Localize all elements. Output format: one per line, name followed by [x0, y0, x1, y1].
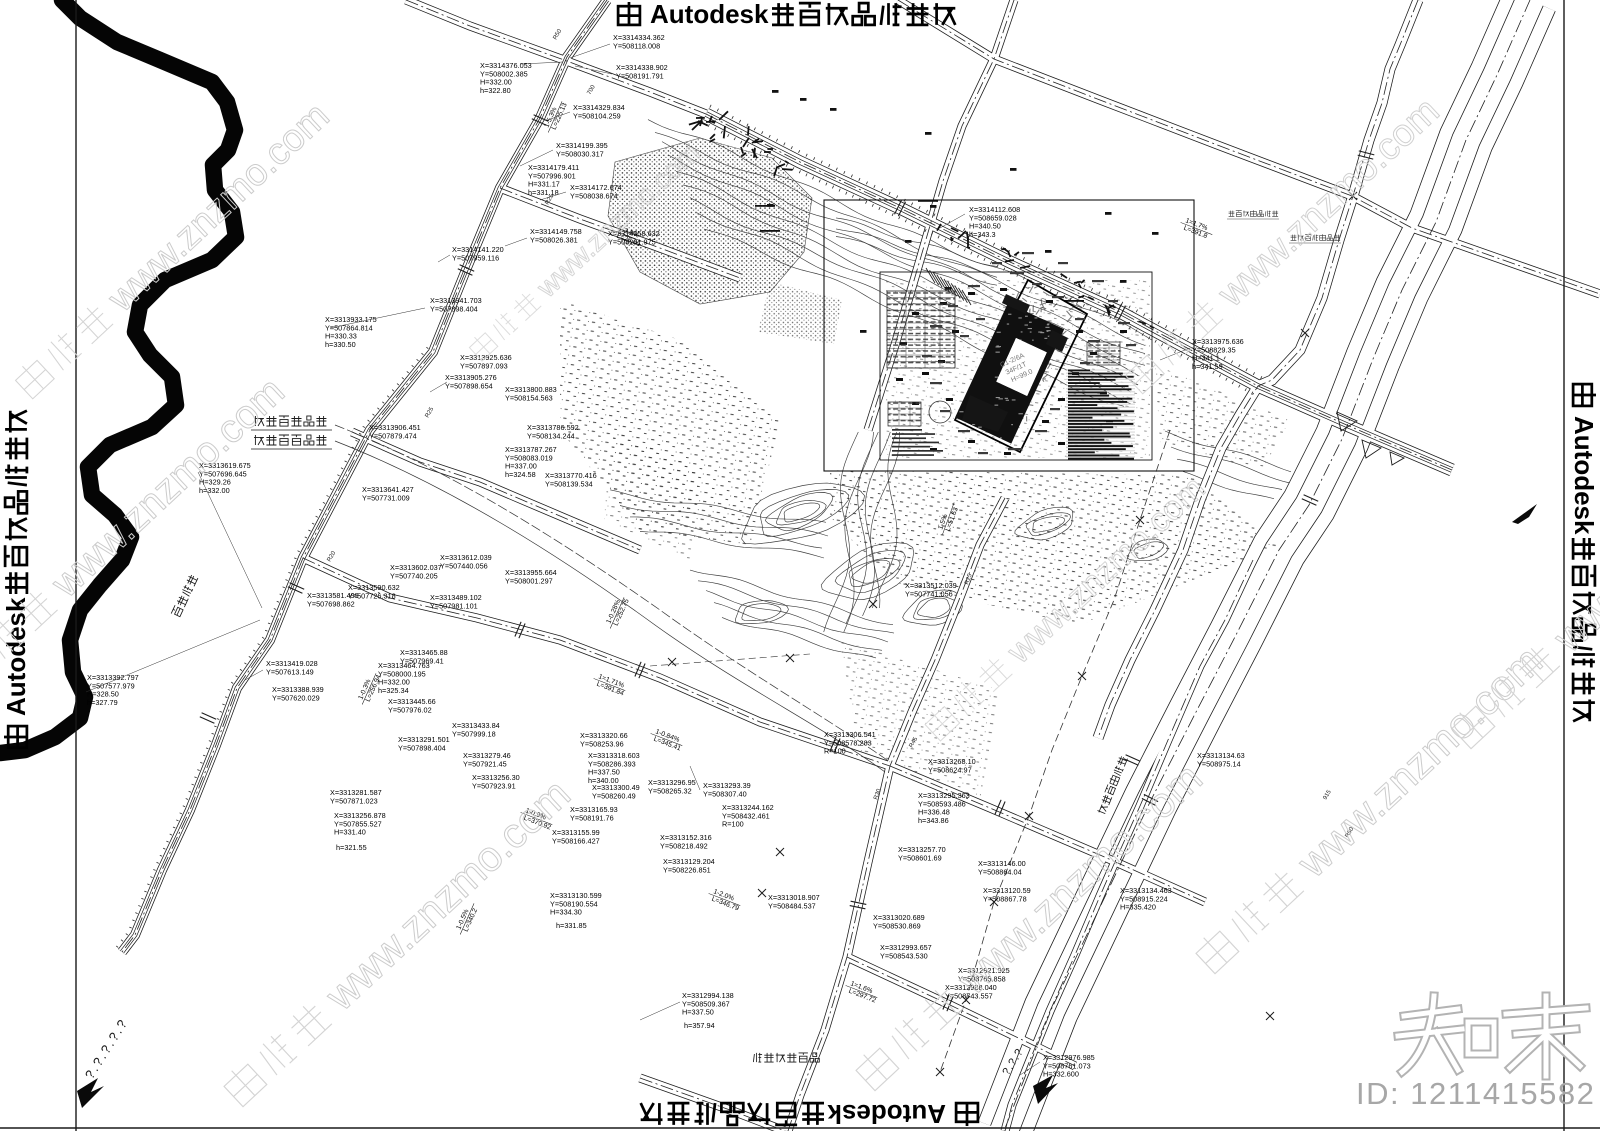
svg-text:ID: 1211415582: ID: 1211415582 — [1356, 1076, 1595, 1111]
svg-text:Y=507731.009: Y=507731.009 — [362, 493, 410, 502]
svg-text:Y=507976.02: Y=507976.02 — [388, 705, 432, 714]
svg-text:Y=508265.32: Y=508265.32 — [648, 786, 692, 795]
svg-text:Y=508134.244: Y=508134.244 — [527, 431, 575, 440]
svg-text:Y=507741.056: Y=507741.056 — [905, 589, 953, 598]
svg-text:Y=508530.869: Y=508530.869 — [873, 921, 921, 930]
svg-text:Y=507698.862: Y=507698.862 — [307, 599, 355, 608]
svg-text:h=357.94: h=357.94 — [684, 1021, 715, 1030]
svg-text:Y=508864.04: Y=508864.04 — [978, 867, 1022, 876]
svg-text:Y=508601.69: Y=508601.69 — [898, 853, 942, 862]
svg-text:Y=507620.029: Y=507620.029 — [272, 693, 320, 702]
svg-text:Y=507613.149: Y=507613.149 — [266, 667, 314, 676]
svg-text:Y=508001.297: Y=508001.297 — [505, 576, 553, 585]
svg-text:h=331.85: h=331.85 — [556, 921, 587, 930]
svg-text:Y=507898.654: Y=507898.654 — [445, 381, 493, 390]
svg-text:Autodesk: Autodesk — [1, 597, 31, 716]
svg-text:h=330.50: h=330.50 — [325, 340, 356, 349]
svg-text:h=325.34: h=325.34 — [378, 686, 409, 695]
svg-text:Y=508307.40: Y=508307.40 — [703, 789, 747, 798]
svg-text:Y=507898.404: Y=507898.404 — [398, 743, 446, 752]
svg-text:Y=508166.427: Y=508166.427 — [552, 836, 600, 845]
svg-text:Y=508218.492: Y=508218.492 — [660, 841, 708, 850]
svg-text:Y=508624.97: Y=508624.97 — [928, 765, 972, 774]
svg-text:Y=508030.317: Y=508030.317 — [556, 149, 604, 158]
svg-text:h=332.00: h=332.00 — [199, 486, 230, 495]
svg-text:Autodesk: Autodesk — [1569, 416, 1599, 535]
svg-text:Y=507999.18: Y=507999.18 — [452, 729, 496, 738]
svg-text:h=341.59: h=341.59 — [1192, 362, 1223, 371]
svg-text:Y=508260.49: Y=508260.49 — [592, 791, 636, 800]
svg-text:Y=507923.91: Y=507923.91 — [472, 781, 516, 790]
svg-text:Y=507898.404: Y=507898.404 — [430, 304, 478, 313]
svg-text:H=334.30: H=334.30 — [550, 908, 582, 917]
svg-text:Y=507897.093: Y=507897.093 — [460, 361, 508, 370]
svg-text:Y=508154.563: Y=508154.563 — [505, 393, 553, 402]
svg-text:Y=507981.101: Y=507981.101 — [430, 601, 478, 610]
svg-text:Y=508139.534: Y=508139.534 — [545, 479, 593, 488]
svg-text:Y=508118.008: Y=508118.008 — [613, 41, 660, 50]
svg-text:Y=508484.537: Y=508484.537 — [768, 901, 816, 910]
svg-text:Y=508253.96: Y=508253.96 — [580, 739, 624, 748]
svg-text:Y=507440.056: Y=507440.056 — [440, 561, 488, 570]
svg-text:R=100: R=100 — [824, 747, 846, 756]
svg-text:Y=507871.023: Y=507871.023 — [330, 796, 378, 805]
svg-text:h=327.79: h=327.79 — [87, 698, 118, 707]
svg-text:h=322.80: h=322.80 — [480, 86, 511, 95]
svg-text:Y=508543.530: Y=508543.530 — [880, 951, 928, 960]
svg-text:h=321.55: h=321.55 — [336, 843, 367, 852]
svg-text:Y=507959.116: Y=507959.116 — [452, 253, 499, 262]
svg-text:Y=508226.851: Y=508226.851 — [663, 865, 711, 874]
svg-text:Y=508191.791: Y=508191.791 — [616, 71, 664, 80]
svg-text:Y=508104.259: Y=508104.259 — [573, 111, 621, 120]
svg-text:Y=507879.474: Y=507879.474 — [369, 431, 417, 440]
svg-text:Autodesk: Autodesk — [650, 0, 769, 29]
svg-text:Y=508038.674: Y=508038.674 — [570, 191, 618, 200]
svg-text:Y=507921.45: Y=507921.45 — [463, 759, 507, 768]
svg-text:H=332.600: H=332.600 — [1043, 1070, 1079, 1079]
svg-text:H=337.50: H=337.50 — [682, 1008, 714, 1017]
svg-text:H=335.420: H=335.420 — [1120, 903, 1156, 912]
svg-text:Y=508191.76: Y=508191.76 — [570, 813, 614, 822]
svg-text:R=100: R=100 — [722, 820, 744, 829]
svg-text:Y=508975.14: Y=508975.14 — [1197, 759, 1241, 768]
svg-text:h=324.58: h=324.58 — [505, 470, 536, 479]
svg-text:Y=507726.318: Y=507726.318 — [348, 591, 396, 600]
svg-text:Y=507740.205: Y=507740.205 — [390, 571, 438, 580]
svg-text:H=331.40: H=331.40 — [334, 828, 366, 837]
svg-text:h=343.86: h=343.86 — [918, 816, 949, 825]
svg-text:Autodesk: Autodesk — [827, 1099, 946, 1129]
svg-text:h=343.3: h=343.3 — [969, 230, 996, 239]
